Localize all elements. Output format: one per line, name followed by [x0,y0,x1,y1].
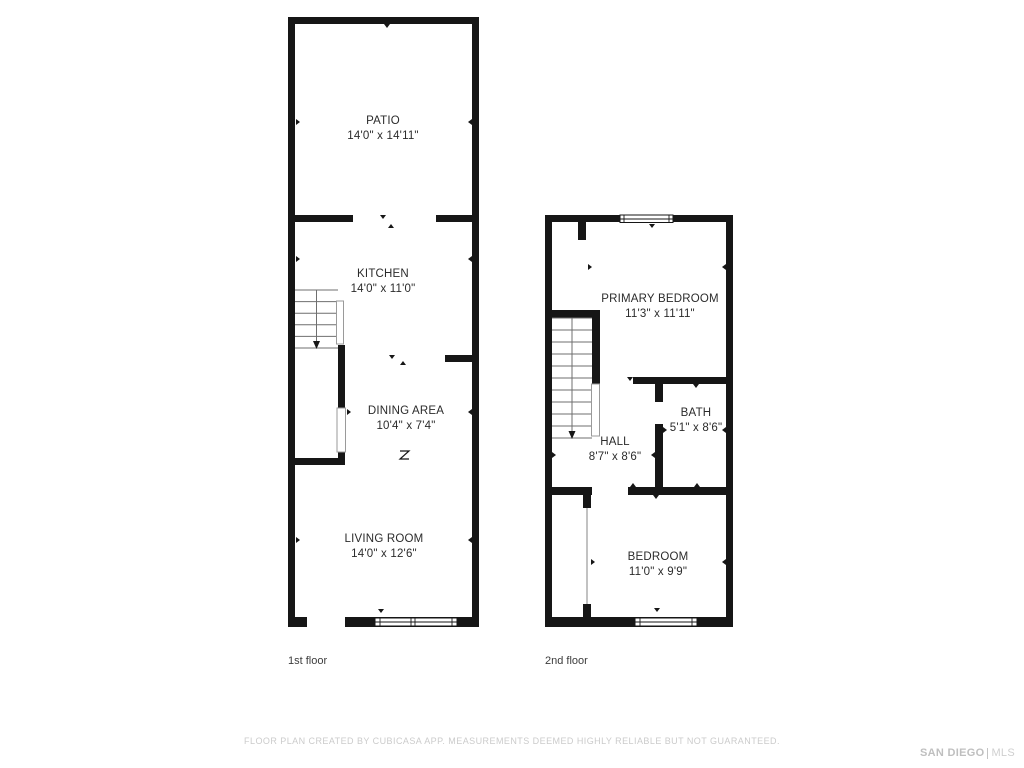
room-name: PATIO [347,114,418,129]
floor-plan-drawing [0,0,1024,768]
room-name: KITCHEN [351,267,416,282]
room-name: HALL [589,435,641,450]
room-name: PRIMARY BEDROOM [601,292,719,307]
room-name: LIVING ROOM [345,532,424,547]
room-label-patio: PATIO 14'0" x 14'11" [347,114,418,144]
room-name: BATH [670,406,722,421]
stair-top-door [337,301,344,344]
floor-label-second: 2nd floor [545,655,588,667]
logo-suffix: MLS [991,747,1015,759]
second-floor-stairs [552,318,592,439]
room-dims: 11'3" x 11'11" [601,307,719,322]
logo-divider-bar [987,748,988,759]
first-floor-markers [296,24,472,613]
room-label-living-room: LIVING ROOM 14'0" x 12'6" [345,532,424,562]
san-diego-mls-logo: SAN DIEGO MLS [920,747,1015,759]
room-name: BEDROOM [628,550,689,565]
floor-label-first: 1st floor [288,655,327,667]
room-label-bedroom: BEDROOM 11'0" x 9'9" [628,550,689,580]
stairwell-open-side [592,384,600,436]
room-dims: 10'4" x 7'4" [368,419,444,434]
first-floor-stairs [295,290,338,349]
primary-bedroom-window [620,215,673,223]
room-dims: 5'1" x 8'6" [670,421,722,436]
room-dims: 14'0" x 12'6" [345,547,424,562]
room-dims: 11'0" x 9'9" [628,565,689,580]
door-swing-marker [400,451,409,459]
room-dims: 14'0" x 14'11" [347,129,418,144]
bedroom-window [635,618,697,626]
under-stair-door [337,408,346,452]
room-dims: 14'0" x 11'0" [351,282,416,297]
room-label-dining-area: DINING AREA 10'4" x 7'4" [368,404,444,434]
room-label-primary-bedroom: PRIMARY BEDROOM 11'3" x 11'11" [601,292,719,322]
footer-disclaimer: FLOOR PLAN CREATED BY CUBICASA APP. MEAS… [244,736,780,746]
room-label-hall: HALL 8'7" x 8'6" [589,435,641,465]
room-label-kitchen: KITCHEN 14'0" x 11'0" [351,267,416,297]
logo-brand: SAN DIEGO [920,747,984,759]
floor-plan-page: PATIO 14'0" x 14'11" KITCHEN 14'0" x 11'… [0,0,1024,768]
room-dims: 8'7" x 8'6" [589,450,641,465]
room-name: DINING AREA [368,404,444,419]
room-label-bath: BATH 5'1" x 8'6" [670,406,722,436]
living-room-window [375,618,457,626]
